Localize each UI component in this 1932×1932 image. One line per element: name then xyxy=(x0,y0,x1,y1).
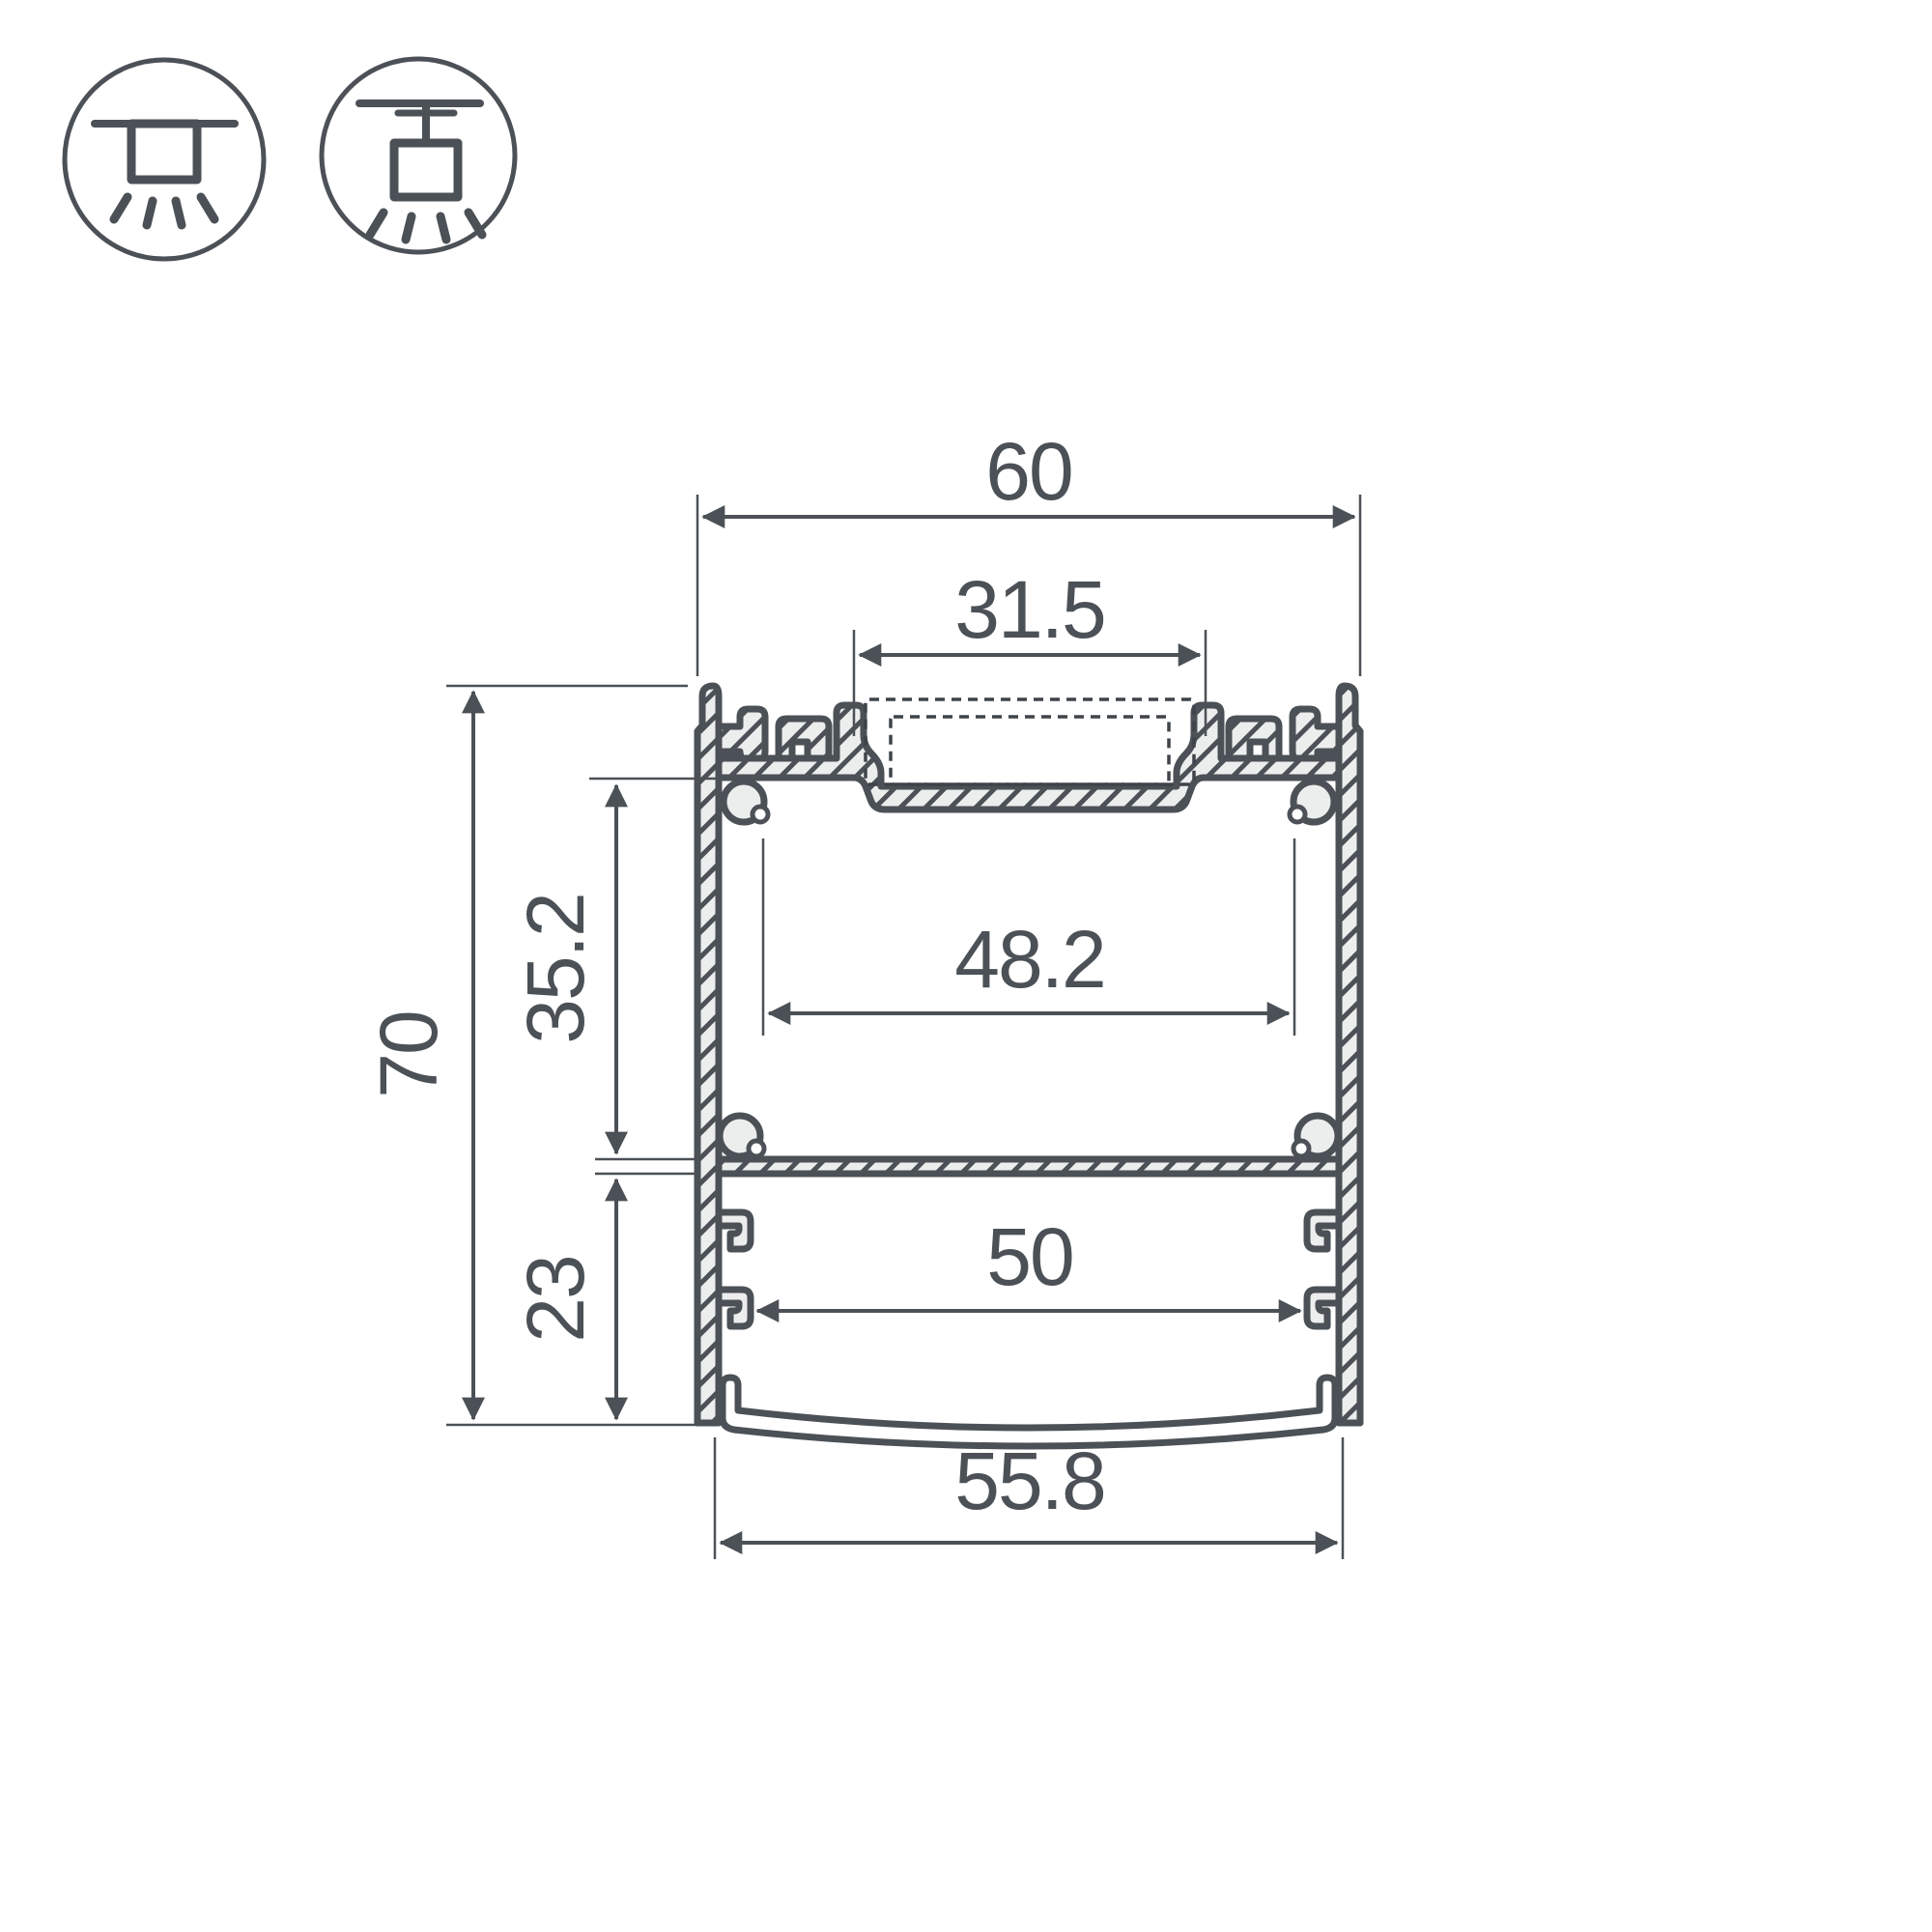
dimension-lines xyxy=(473,517,1354,1543)
luminaire-box xyxy=(394,143,458,197)
dim-label-diffuser-width: 55.8 xyxy=(954,1435,1105,1526)
drawing-page: 60 31.5 48.2 50 55.8 70 35.2 23 xyxy=(0,0,1932,1932)
hidden-component-inner xyxy=(891,717,1169,784)
pendant-mount-icon xyxy=(322,59,515,252)
left-wall xyxy=(697,686,719,1423)
dim-label-outer-width: 60 xyxy=(985,426,1071,517)
dimensions: 60 31.5 48.2 50 55.8 70 35.2 23 xyxy=(363,426,1360,1559)
surface-mount-icon xyxy=(65,60,264,259)
hook xyxy=(719,1212,751,1249)
hidden-component-dashed xyxy=(866,699,1194,784)
dim-label-total-height: 70 xyxy=(363,1011,454,1097)
right-wall xyxy=(1339,686,1360,1423)
dim-label-channel-width: 31.5 xyxy=(954,564,1105,655)
hook xyxy=(1307,1290,1339,1326)
light-rays xyxy=(114,197,214,225)
screw-boss-notch xyxy=(753,807,768,822)
screw-boss-notch xyxy=(1293,1141,1309,1156)
dim-label-lower-cavity-height: 23 xyxy=(510,1256,601,1342)
profile-cross-section-drawing: 60 31.5 48.2 50 55.8 70 35.2 23 xyxy=(0,0,1932,1932)
screw-boss-notch xyxy=(1290,807,1305,822)
screw-boss-notch xyxy=(749,1141,764,1156)
left-wall-tab xyxy=(719,709,765,759)
dim-label-upper-cavity-height: 35.2 xyxy=(510,894,601,1044)
right-wall-tab xyxy=(1293,709,1339,759)
profile-body xyxy=(697,686,1360,1446)
dim-label-upper-inner-width: 48.2 xyxy=(954,914,1105,1005)
hook xyxy=(719,1290,751,1326)
hidden-component-outer xyxy=(866,699,1194,784)
light-rays xyxy=(370,213,482,240)
hook xyxy=(1307,1212,1339,1249)
dim-label-lower-inner-width: 50 xyxy=(986,1211,1072,1302)
middle-divider-plate xyxy=(719,1159,1339,1174)
luminaire-box xyxy=(131,124,197,180)
